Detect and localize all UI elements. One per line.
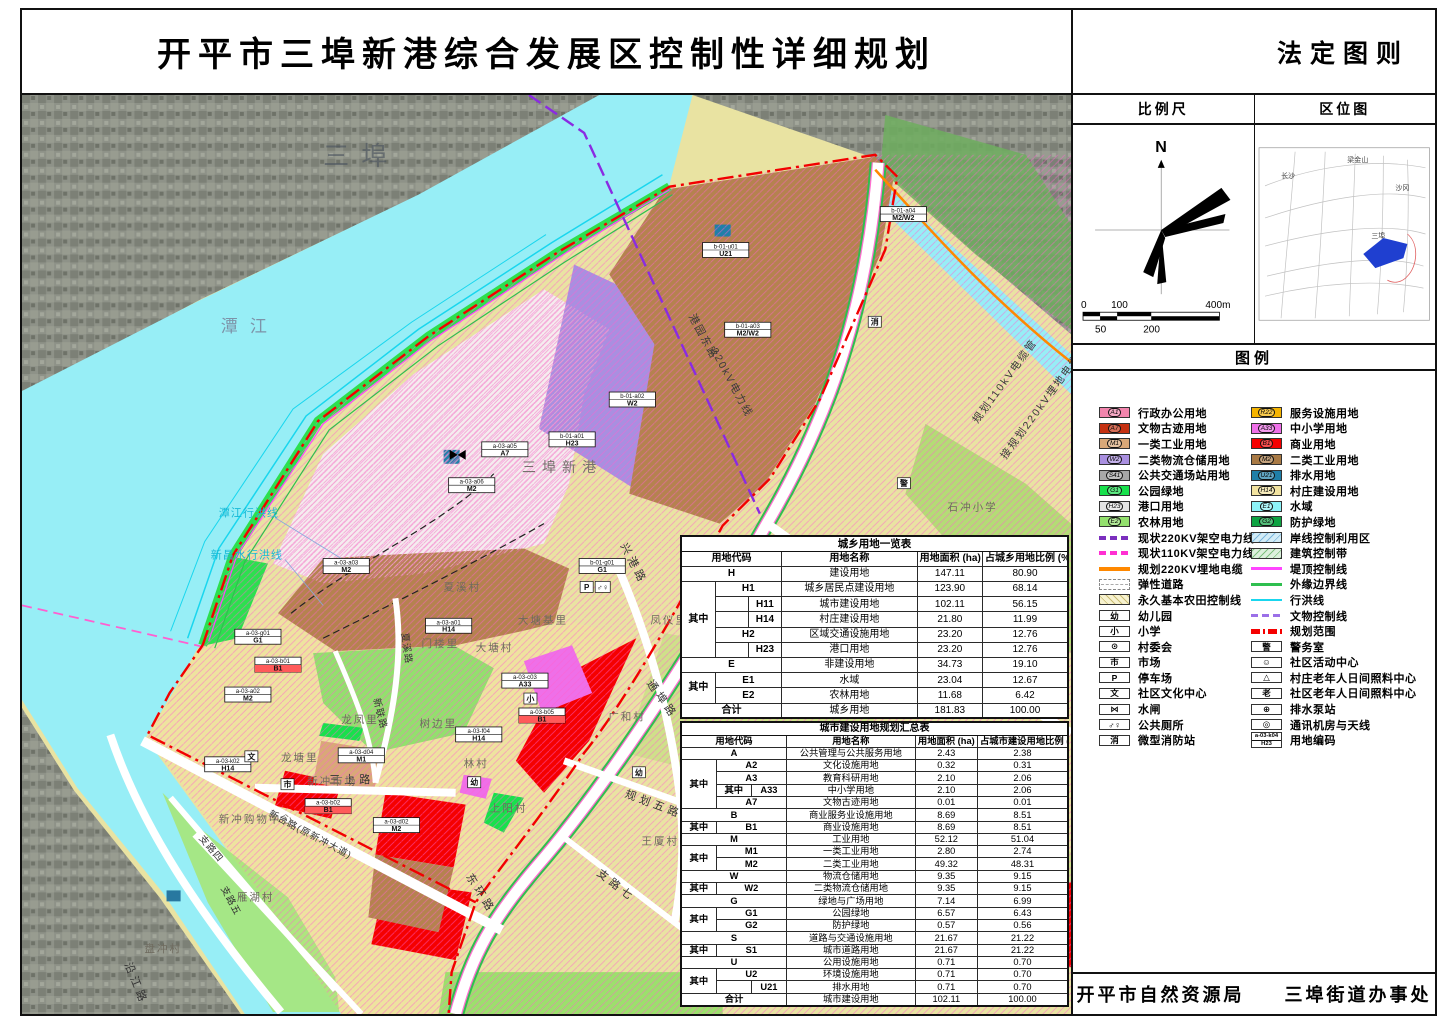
svg-text:H14: H14	[472, 735, 485, 742]
svg-text:幼: 幼	[635, 767, 643, 777]
legend-item: 现状110KV架空电力线	[1099, 545, 1255, 561]
zone-pump-station	[167, 890, 181, 901]
panel-footer: 开平市自然资源局 三埠街道办事处	[1073, 972, 1435, 1014]
legend-item: a-03-k04H23用地编码	[1251, 732, 1417, 748]
legend-item: A33中小学用地	[1251, 421, 1417, 437]
line-swatch	[1099, 548, 1130, 559]
zoning-map: 三埠 潭江 潭江行洪线 新昌水行洪线 三埠新港 港园东路 220kV电力线 规划…	[22, 95, 1071, 1014]
office-name: 三埠街道办事处	[1285, 981, 1432, 1007]
windrose-icon	[1143, 188, 1230, 284]
table1-title: 城乡用地一览表	[681, 536, 1068, 551]
table-row: E非建设用地34.7319.10	[681, 658, 1068, 673]
map-label-flood2: 新昌水行洪线	[211, 548, 283, 562]
svg-text:文: 文	[247, 751, 256, 761]
legend-item: H14村庄建设用地	[1251, 483, 1417, 499]
water-gate-icon: ⋈	[1099, 704, 1130, 715]
svg-text:a-03-d02: a-03-d02	[384, 820, 409, 826]
svg-text:a-03-g01: a-03-g01	[246, 631, 271, 637]
place-shichong-school: 石冲小学	[948, 501, 998, 514]
shoreline-swatch	[1251, 532, 1282, 543]
map-column: 开平市三埠新港综合发展区控制性详细规划	[22, 10, 1071, 1014]
zone-swatch: G2	[1251, 516, 1282, 527]
legend-item: A7文物古迹用地	[1099, 421, 1255, 437]
legend-header: 图例	[1073, 345, 1435, 371]
svg-text:消: 消	[871, 317, 879, 327]
table-row: 其中E1水域23.0412.67	[681, 673, 1068, 688]
svg-text:a-03-d04: a-03-d04	[349, 750, 374, 756]
svg-text:a-03-a03: a-03-a03	[334, 560, 359, 566]
table-row: H23港口用地23.2012.76	[681, 642, 1068, 657]
svg-text:G1: G1	[598, 567, 607, 574]
table-row: A3教育科研用地2.102.06	[681, 772, 1068, 784]
legend-item: M2二类工业用地	[1251, 452, 1417, 468]
doc-type-label: 法定图则	[1073, 10, 1435, 95]
legend-item: P停车场	[1099, 670, 1255, 686]
table-row: 其中M1一类工业用地2.802.74	[681, 846, 1068, 858]
fire-station-icon: 消	[868, 316, 881, 327]
place-menlouli: 门楼里	[422, 637, 460, 650]
svg-text:b-01-u01: b-01-u01	[714, 245, 739, 251]
table-row: U21排水用地0.710.70	[681, 981, 1068, 993]
parcel-label: a-03-a01H14	[426, 618, 472, 633]
svg-text:M2/W2: M2/W2	[892, 215, 914, 222]
table-row: 其中U2环境设施用地0.710.70	[681, 969, 1068, 981]
place-xinchong-market: 新冲市场	[307, 775, 357, 788]
market-icon: 市	[281, 779, 294, 790]
svg-text:W2: W2	[627, 401, 638, 408]
place-yanhucun: 雁湖村	[237, 890, 275, 903]
police-room-icon: 警	[1251, 641, 1282, 652]
svg-text:b-01-a04: b-01-a04	[891, 209, 916, 215]
compass-scale: N 0 100 400m	[1073, 125, 1254, 343]
legend: A1行政办公用地 A7文物古迹用地 M1一类工业用地 W2二类物流仓储用地 S4…	[1073, 371, 1435, 972]
parking-icon: P	[580, 581, 593, 592]
svg-text:幼: 幼	[470, 777, 478, 787]
parcel-label: a-03-a02M2	[225, 687, 271, 702]
zone-swatch: U21	[1251, 470, 1282, 481]
place-datangcun: 大塘村	[476, 641, 514, 654]
place-wangxiacun: 王厦村	[641, 835, 679, 848]
svg-text:M2: M2	[341, 567, 351, 574]
legend-item: G1公园绿地	[1099, 483, 1255, 499]
parking-icon: P	[1099, 672, 1130, 683]
table-row: G2防护绿地0.570.56	[681, 919, 1068, 931]
primary-school-icon: 小	[524, 693, 537, 704]
svg-text:M1: M1	[356, 756, 366, 763]
table2-title: 城市建设用地规划汇总表	[681, 722, 1068, 735]
svg-text:♂♀: ♂♀	[597, 583, 609, 592]
parcel-label: a-03-c03A33	[502, 673, 548, 688]
table-row: A7文物古迹用地0.010.01	[681, 796, 1068, 808]
svg-text:a-03-b01: a-03-b01	[266, 659, 291, 665]
legend-item: 老社区老年人日间照料中心	[1251, 686, 1417, 702]
place-xiaxicun: 夏溪村	[444, 580, 482, 593]
farmland-swatch	[1099, 594, 1130, 605]
boundary-swatch	[1251, 626, 1282, 637]
parcel-code-sample: a-03-k04H23	[1251, 732, 1282, 748]
toilet-icon: ♂♀	[595, 581, 610, 592]
minimap-label-changsha: 长沙	[1281, 171, 1295, 180]
scale-cell: N 0 100 400m	[1073, 125, 1255, 343]
table-row: G绿地与广场用地7.146.99	[681, 895, 1068, 907]
legend-item: 建筑控制带	[1251, 545, 1417, 561]
zone-swatch: R22	[1251, 407, 1282, 418]
legend-item: E1水域	[1251, 499, 1417, 515]
svg-text:警: 警	[899, 478, 908, 488]
scale-tick-400: 400m	[1205, 300, 1230, 311]
legend-item: ♂♀公共厕所	[1099, 717, 1255, 733]
svg-text:P: P	[584, 583, 590, 592]
svg-text:b-01-g01: b-01-g01	[590, 560, 615, 566]
panel-content: N 0 100 400m	[1073, 125, 1435, 345]
legend-item: 消微型消防站	[1099, 732, 1255, 748]
legend-item: U21排水用地	[1251, 467, 1417, 483]
zone-swatch: H23	[1099, 501, 1130, 512]
zone-swatch: H14	[1251, 485, 1282, 496]
police-icon: 警	[897, 478, 910, 489]
table-row: 其中G1公园绿地6.576.43	[681, 907, 1068, 919]
table-row: A公共管理与公共服务用地2.432.38	[681, 747, 1068, 759]
svg-text:B1: B1	[324, 807, 333, 814]
legend-item: ⊕排水泵站	[1251, 701, 1417, 717]
map-label-port: 三埠新港	[522, 459, 602, 475]
legend-item: 规划220KV埋地电缆	[1099, 561, 1255, 577]
page-title: 开平市三埠新港综合发展区控制性详细规划	[22, 10, 1071, 95]
parcel-label: b-01-a03M2/W2	[725, 322, 771, 337]
svg-text:b-01-a02: b-01-a02	[620, 394, 645, 400]
parcel-label: a-03-d02M2	[373, 818, 419, 833]
legend-item: 外缘边界线	[1251, 577, 1417, 593]
parcel-label: a-03-a03M2	[323, 558, 369, 573]
parcel-label: a-03-b05B1	[519, 708, 565, 723]
svg-text:A7: A7	[500, 450, 509, 457]
legend-column-right: R22服务设施用地 A33中小学用地 B1商业用地 M2二类工业用地 U21排水…	[1251, 405, 1417, 748]
place-longfengli: 龙凤里	[341, 713, 379, 726]
table-row: S道路与交通设施用地21.6721.22	[681, 932, 1068, 944]
legend-item: 规划范围	[1251, 623, 1417, 639]
svg-text:市: 市	[283, 779, 291, 789]
parcel-label: a-03-f04H14	[456, 727, 502, 742]
line-swatch	[1251, 610, 1282, 621]
kindergarten-icon: 幼	[632, 767, 645, 778]
zone-swatch: E1	[1251, 501, 1282, 512]
scale-tick-50: 50	[1095, 324, 1107, 335]
legend-item: M1一类工业用地	[1099, 436, 1255, 452]
table-row: M2二类工业用地49.3248.31	[681, 858, 1068, 870]
culture-center-icon: 文	[245, 751, 258, 762]
svg-text:B1: B1	[273, 666, 282, 673]
parcel-label: a-03-k02H14	[205, 757, 251, 772]
minimap-label-shagang: 沙冈	[1395, 184, 1409, 192]
table-row: 其中A2文化设施用地0.320.31	[681, 760, 1068, 772]
svg-text:U21: U21	[719, 251, 732, 258]
legend-item: 小小学	[1099, 623, 1255, 639]
legend-item: H23港口用地	[1099, 499, 1255, 515]
line-swatch	[1099, 532, 1130, 543]
svg-text:b-01-a03: b-01-a03	[736, 324, 761, 330]
legend-item: 文社区文化中心	[1099, 686, 1255, 702]
zone-swatch: G1	[1099, 485, 1130, 496]
parcel-label: a-03-b02B1	[305, 799, 351, 814]
scale-bar: 0 100 400m 50 200	[1081, 300, 1230, 335]
table-row: H14村庄建设用地21.8011.99	[681, 612, 1068, 627]
place-guanghecun: 广和村	[608, 710, 646, 723]
legend-item: ⋈水闸	[1099, 701, 1255, 717]
svg-text:a-03-k02: a-03-k02	[216, 759, 240, 765]
line-swatch	[1251, 594, 1282, 605]
legend-item: E2农林用地	[1099, 514, 1255, 530]
table-row: U公用设施用地0.710.70	[681, 956, 1068, 968]
map-label-river: 潭江	[221, 317, 279, 336]
parcel-label: a-03-b01B1	[255, 657, 301, 672]
line-swatch	[1251, 563, 1282, 574]
legend-item: 行洪线	[1251, 592, 1417, 608]
kindergarten-icon: 幼	[468, 777, 481, 788]
zone-swatch: M1	[1099, 438, 1130, 449]
svg-text:M2: M2	[467, 486, 477, 493]
scale-tick-0: 0	[1081, 300, 1087, 311]
place-longtangli: 龙塘里	[281, 751, 319, 764]
legend-item: S41公共交通场站用地	[1099, 467, 1255, 483]
legend-item: ⊙村委会	[1099, 639, 1255, 655]
mini-fire-station-icon: 消	[1099, 735, 1130, 746]
zone-swatch: A7	[1099, 423, 1130, 434]
scale-tick-100: 100	[1111, 300, 1128, 311]
svg-text:G1: G1	[253, 638, 262, 645]
place-lincun: 林村	[464, 757, 489, 770]
place-datangjili: 大塘基里	[518, 613, 568, 626]
table-row: M工业用地52.1251.04	[681, 833, 1068, 845]
north-label: N	[1155, 138, 1167, 156]
map-label-flood1: 潭江行洪线	[219, 506, 279, 520]
legend-item: ☺社区活动中心	[1251, 655, 1417, 671]
culture-center-icon: 文	[1099, 688, 1130, 699]
community-daycare-icon: 老	[1251, 688, 1282, 699]
location-minimap: 梁金山 长沙 沙冈 三埠	[1255, 125, 1436, 343]
legend-item: △村庄老年人日间照料中心	[1251, 670, 1417, 686]
zone-swatch: A1	[1099, 407, 1130, 418]
telecom-antenna-icon: ◎	[1251, 719, 1282, 730]
legend-item: A1行政办公用地	[1099, 405, 1255, 421]
map-label-sanbu-watermark: 三埠	[323, 141, 399, 171]
parcel-label: b-01-a01H23	[549, 432, 595, 447]
drainage-pump-icon: ⊕	[1251, 704, 1282, 715]
line-swatch	[1099, 563, 1130, 574]
info-panel: 法定图则 比例尺 区位图 N	[1071, 10, 1435, 1014]
scale-header: 比例尺	[1073, 95, 1255, 123]
kindergarten-icon: 幼	[1099, 610, 1130, 621]
table-row: B商业服务业设施用地8.698.51	[681, 809, 1068, 821]
zone-swatch: S41	[1099, 470, 1130, 481]
zone-swatch: W2	[1099, 454, 1130, 465]
zone-swatch: A33	[1251, 423, 1282, 434]
svg-text:H14: H14	[442, 627, 455, 634]
village-daycare-icon: △	[1251, 672, 1282, 683]
location-cell: 梁金山 长沙 沙冈 三埠	[1255, 125, 1436, 343]
table-row: 其中S1城市道路用地21.6721.22	[681, 944, 1068, 956]
parcel-label: b-01-a04M2/W2	[880, 207, 926, 222]
parcel-label: a-03-a06M2	[449, 478, 495, 493]
table-row: W物流仓储用地9.359.15	[681, 870, 1068, 882]
parcel-label: a-03-a05A7	[482, 442, 528, 457]
zone-swatch: E2	[1099, 516, 1130, 527]
svg-text:M2/W2: M2/W2	[737, 331, 759, 338]
primary-school-icon: 小	[1099, 626, 1130, 637]
parcel-label: a-03-d04M1	[338, 748, 384, 763]
svg-text:M2: M2	[243, 696, 253, 703]
location-header: 区位图	[1255, 95, 1436, 123]
place-shubianli: 树边里	[420, 717, 458, 730]
svg-text:a-03-a01: a-03-a01	[437, 620, 462, 626]
table-row: 其中H1城乡居民点建设用地123.9068.14	[681, 582, 1068, 597]
urban-construction-land-table: 城市建设用地规划汇总表 用地代码 用地名称 用地面积 (ha) 占城市建设用地比…	[680, 721, 1069, 1007]
table-row: H11城市建设用地102.1156.15	[681, 597, 1068, 612]
svg-text:a-03-a06: a-03-a06	[460, 480, 485, 486]
scale-tick-200: 200	[1143, 324, 1160, 335]
legend-item: 现状220KV架空电力线	[1099, 530, 1255, 546]
table-row: 合计城市建设用地102.11100.00	[681, 993, 1068, 1005]
village-committee-icon: ⊙	[1099, 641, 1130, 652]
place-shangyangcun: 上阳村	[490, 802, 528, 815]
svg-text:H14: H14	[221, 765, 234, 772]
legend-item: ◎通讯机房与天线	[1251, 717, 1417, 733]
legend-item: 警警务室	[1251, 639, 1417, 655]
parcel-label: b-01-g01G1	[579, 558, 625, 573]
table-row: 其中B1商业设施用地8.698.51	[681, 821, 1068, 833]
svg-text:B1: B1	[537, 716, 546, 723]
table-row: H2区域交通设施用地23.2012.76	[681, 627, 1068, 642]
authority-name: 开平市自然资源局	[1077, 981, 1245, 1007]
legend-item: G2防护绿地	[1251, 514, 1417, 530]
plan-sheet: 开平市三埠新港综合发展区控制性详细规划	[20, 8, 1437, 1016]
table-row: 其中W2二类物流仓储用地9.359.15	[681, 883, 1068, 895]
table-row: 其中A33中小学用地2.102.06	[681, 784, 1068, 796]
legend-item: 弹性道路	[1099, 577, 1255, 593]
community-activity-icon: ☺	[1251, 657, 1282, 668]
legend-item: 幼幼儿园	[1099, 608, 1255, 624]
building-control-swatch	[1251, 548, 1282, 559]
line-swatch	[1251, 579, 1282, 590]
legend-item: 文物控制线	[1251, 608, 1417, 624]
legend-item: 永久基本农田控制线	[1099, 592, 1255, 608]
svg-text:b-01-a01: b-01-a01	[560, 434, 585, 440]
market-icon: 市	[1099, 657, 1130, 668]
place-xinchong-mall: 新冲购物中心	[219, 813, 294, 826]
svg-text:a-03-c03: a-03-c03	[513, 675, 537, 681]
elastic-road-swatch	[1099, 579, 1130, 590]
svg-text:a-03-b02: a-03-b02	[316, 801, 341, 807]
public-toilet-icon: ♂♀	[1099, 719, 1130, 730]
svg-text:a-03-a05: a-03-a05	[493, 444, 518, 450]
legend-item: 岸线控制利用区	[1251, 530, 1417, 546]
legend-column-left: A1行政办公用地 A7文物古迹用地 M1一类工业用地 W2二类物流仓储用地 S4…	[1099, 405, 1255, 748]
legend-item: 堤顶控制线	[1251, 561, 1417, 577]
svg-text:A33: A33	[518, 682, 531, 689]
zone-swatch: B1	[1251, 438, 1282, 449]
parcel-label: b-01-a02W2	[609, 392, 655, 407]
legend-item: R22服务设施用地	[1251, 405, 1417, 421]
legend-item: W2二类物流仓储用地	[1099, 452, 1255, 468]
panel-headers: 比例尺 区位图	[1073, 95, 1435, 125]
legend-item: B1商业用地	[1251, 436, 1417, 452]
table-row: H建设用地147.1180.90	[681, 566, 1068, 581]
table-row: E2农林用地11.686.42	[681, 688, 1068, 703]
svg-text:a-03-b05: a-03-b05	[530, 710, 555, 716]
svg-text:小: 小	[525, 694, 534, 704]
place-panchongcun: 盘冲村	[144, 942, 182, 955]
svg-text:H23: H23	[566, 440, 579, 447]
table-row: 合计城乡用地181.83100.00	[681, 703, 1068, 718]
zone-swatch: M2	[1251, 454, 1282, 465]
svg-text:M2: M2	[392, 826, 402, 833]
urban-rural-land-table: 城乡用地一览表 用地代码 用地名称 用地面积 (ha) 占城乡用地比例 (%) …	[680, 535, 1069, 719]
parcel-label: b-01-u01U21	[703, 243, 749, 258]
legend-item: 市市场	[1099, 655, 1255, 671]
parcel-label: a-03-g01G1	[235, 629, 281, 644]
minimap-label-liangjinshan: 梁金山	[1347, 155, 1368, 164]
svg-text:a-03-a02: a-03-a02	[236, 689, 261, 695]
north-arrow-icon	[1158, 160, 1165, 168]
svg-text:a-03-f04: a-03-f04	[468, 729, 491, 735]
